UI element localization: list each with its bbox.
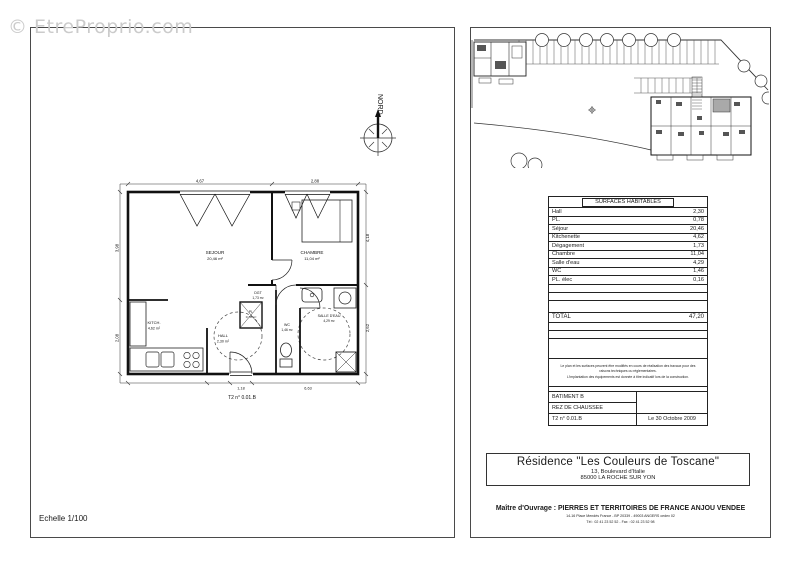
parking-row-mid: [634, 78, 701, 93]
room-label-pl: PL: [249, 310, 253, 314]
hob-burner-icon: [193, 361, 199, 367]
disclaimer-note: Le plan et les surfaces peuvent être mod…: [549, 359, 707, 387]
row-label: Dégagement: [552, 243, 584, 249]
row-value: 20,46: [690, 226, 704, 232]
empty-row: [549, 293, 707, 301]
lamp-symbol-icon: [588, 106, 596, 114]
toilet-icon: [281, 343, 292, 357]
residence-city: 85000 LA ROCHE SUR YON: [487, 475, 749, 481]
highlighted-unit: [713, 99, 730, 112]
surface-row: Salle d'eau4,29: [549, 259, 707, 268]
surface-row: PL.0,78: [549, 217, 707, 226]
kitchen-counter: [130, 348, 203, 371]
tree-icons-bottom: [511, 153, 542, 168]
note-line-2: L'implantation des équipements est donné…: [567, 375, 689, 380]
dim-top-left: 4,67: [196, 179, 205, 184]
row-value: 0,78: [693, 217, 704, 223]
dim-bottom-right: 6,63: [304, 387, 311, 391]
owner-phone: Tél : 02 41 23 52 52 - Fax : 02 41 23 52…: [470, 520, 771, 525]
room-label-salledeau: SALLE D'EAU: [318, 314, 341, 318]
watermark: © EtreProprio.com: [8, 16, 193, 38]
bed: [302, 200, 352, 242]
row-value: 1,46: [693, 268, 704, 274]
surface-row: Séjour20,46: [549, 225, 707, 234]
owner-block: Maître d'Ouvrage : PIERRES ET TERRITOIRE…: [470, 505, 771, 526]
total-value: 47,20: [689, 314, 704, 320]
row-label: Kitchenette: [552, 234, 580, 240]
empty-row: [549, 323, 707, 331]
room-area-pl: 0,78 m²: [246, 315, 257, 319]
surfaces-table: SURFACES HABITABLES Hall2,30 PL.0,78 Séj…: [548, 196, 708, 426]
duct-hatch-icon: [336, 352, 356, 372]
room-area-salledeau: 4,29 m²: [323, 319, 335, 323]
room-label-sejour: SEJOUR: [206, 250, 225, 255]
date-label: Le 30 Octobre 2009: [637, 414, 707, 425]
empty-block: [549, 339, 707, 359]
dim-bottom-left: 1,18: [237, 387, 244, 391]
empty-row: [549, 285, 707, 293]
row-label: Chambre: [552, 251, 575, 257]
surfaces-table-header: SURFACES HABITABLES: [549, 197, 707, 208]
outer-walls: [128, 192, 358, 374]
kitchen-tall-unit: [130, 302, 146, 346]
owner-address: 14-16 Place Mendès France - BP 20339 - 4…: [470, 514, 771, 519]
washing-machine-drum-icon: [339, 292, 351, 304]
dim-top-right: 2,88: [311, 179, 320, 184]
row-value: 11,04: [690, 251, 704, 257]
row-label: PL.: [552, 217, 560, 223]
kitchen-sink-icon: [146, 352, 159, 367]
room-label-dgt: DGT: [254, 291, 262, 295]
floor-label: REZ DE CHAUSSEE: [549, 403, 637, 414]
note-line-1: Le plan et les surfaces peuvent être mod…: [555, 364, 701, 374]
hob-burner-icon: [184, 352, 190, 358]
room-label-wc: WC: [284, 323, 290, 327]
washing-machine: [334, 288, 356, 308]
hob-burner-icon: [184, 361, 190, 367]
door-wc-icon: [276, 285, 296, 305]
site-plan: [471, 28, 769, 168]
entrance-door-icon: [230, 352, 252, 374]
cartouche-rows: BATIMENT B REZ DE CHAUSSEE T2 n° 0.01.B …: [549, 392, 707, 425]
dim-left-bottom: 2,08: [115, 333, 120, 342]
bathroom-sink-icon: [302, 288, 322, 302]
surface-row: PL. élec0,16: [549, 276, 707, 285]
dim-right-top: 4,18: [365, 233, 370, 242]
total-row: TOTAL 47,20: [549, 313, 707, 323]
row-value: 1,73: [693, 243, 704, 249]
french-door-leaves-sejour-icon: [180, 194, 250, 226]
unit-ref-label: T2 n° 0.01.B: [549, 414, 637, 425]
building-b: [651, 97, 751, 160]
room-area-hall: 2,30 m²: [217, 340, 230, 344]
window-opening-chambre: [285, 189, 330, 195]
surface-row: Dégagement1,73: [549, 242, 707, 251]
row-label: WC: [552, 268, 561, 274]
row-value: 4,62: [693, 234, 704, 240]
room-area-wc: 1,46 m²: [281, 328, 293, 332]
room-label-kitchen: KITCH.: [147, 320, 160, 325]
plan-unit-label: T2 n° 0.01.B: [228, 395, 257, 401]
spacer-row: [549, 301, 707, 313]
door-salledeau-icon: [300, 288, 320, 308]
dimension-ticks: [118, 182, 368, 385]
dim-right-bottom: 2,62: [365, 323, 370, 332]
scale-label: Echelle 1/100: [39, 514, 87, 523]
north-label: NORD: [376, 94, 383, 115]
title-block: Résidence "Les Couleurs de Toscane" 13, …: [486, 453, 750, 486]
north-arrow: NORD: [348, 86, 412, 160]
hob-burner-icon: [193, 352, 199, 358]
row-label: Hall: [552, 209, 562, 215]
residence-name: Résidence "Les Couleurs de Toscane": [487, 456, 749, 468]
empty-row: [549, 331, 707, 339]
surface-row: WC1,46: [549, 268, 707, 277]
row-value: 2,30: [693, 209, 704, 215]
sink-drain-icon: [310, 293, 314, 297]
floor-plan-drawing: 4,67 2,88 3,98 2,08 4,18 2,62 1,18 6,63 …: [90, 178, 380, 403]
dim-left-top: 3,98: [115, 243, 120, 252]
surface-row: Hall2,30: [549, 208, 707, 217]
row-label: Salle d'eau: [552, 260, 580, 266]
room-area-chambre: 11,04 m²: [304, 256, 320, 261]
kitchen-sink2-icon: [161, 352, 174, 367]
row-label: PL. élec: [552, 277, 572, 283]
room-area-dgt: 1,73 m²: [252, 296, 264, 300]
nightstand: [292, 202, 300, 210]
empty-cell: [637, 392, 707, 414]
room-area-sejour: 20,46 m²: [207, 256, 223, 261]
toilet-tank-icon: [280, 359, 292, 367]
dimension-lines: [120, 184, 366, 383]
row-value: 0,16: [693, 277, 704, 283]
room-label-chambre: CHAMBRE: [301, 250, 324, 255]
room-label-hall: HALL: [218, 333, 229, 338]
owner-line: Maître d'Ouvrage : PIERRES ET TERRITOIRE…: [470, 505, 771, 512]
building-label: BATIMENT B: [549, 392, 637, 403]
parking-row-top: [519, 40, 719, 64]
total-label: TOTAL: [552, 314, 571, 320]
door-chambre-icon: [272, 260, 292, 280]
room-area-kitchen: 4,62 m²: [148, 327, 161, 331]
surface-row: Kitchenette4,62: [549, 234, 707, 243]
surface-row: Chambre11,04: [549, 251, 707, 260]
row-label: Séjour: [552, 226, 568, 232]
surfaces-table-title: SURFACES HABITABLES: [582, 198, 674, 207]
scanned-plan-page: © EtreProprio.com NORD: [0, 0, 800, 565]
row-value: 4,29: [693, 260, 704, 266]
building-a: [474, 42, 526, 84]
